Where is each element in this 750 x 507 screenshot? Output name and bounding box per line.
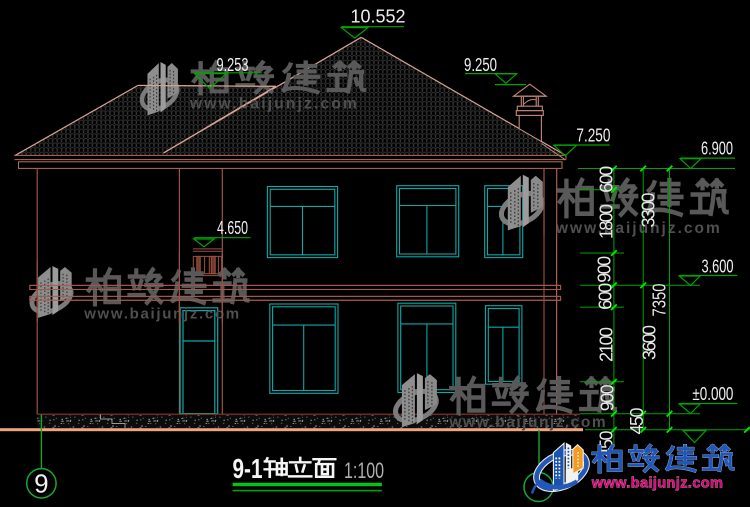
svg-text:www.baijunjz.com: www.baijunjz.com <box>83 306 241 323</box>
svg-text:900: 900 <box>597 384 617 411</box>
svg-text:3600: 3600 <box>639 325 659 360</box>
svg-text:9.250: 9.250 <box>464 55 497 75</box>
svg-text:www.baijunjz.com: www.baijunjz.com <box>189 96 359 113</box>
svg-text:9: 9 <box>34 469 48 499</box>
svg-text:1800: 1800 <box>596 204 616 239</box>
svg-text:600: 600 <box>595 283 615 310</box>
svg-text:±0.000: ±0.000 <box>692 384 733 404</box>
svg-text:www.baijunjz.com: www.baijunjz.com <box>448 414 607 431</box>
svg-text:2100: 2100 <box>596 327 616 362</box>
svg-text:3300: 3300 <box>638 193 658 228</box>
svg-text:7.250: 7.250 <box>576 125 610 145</box>
svg-text:9.253: 9.253 <box>217 55 249 75</box>
svg-text:1:100: 1:100 <box>344 458 384 483</box>
svg-text:4.650: 4.650 <box>217 218 248 238</box>
svg-text:3.600: 3.600 <box>702 257 734 277</box>
svg-text:9-1: 9-1 <box>233 453 263 484</box>
svg-text:450: 450 <box>627 408 647 435</box>
svg-text:600: 600 <box>596 166 616 193</box>
svg-text:www.baijunjz.com: www.baijunjz.com <box>591 476 724 492</box>
svg-text:6.900: 6.900 <box>701 138 733 158</box>
svg-text:900: 900 <box>594 256 614 283</box>
svg-text:7350: 7350 <box>649 284 669 317</box>
svg-text:10.552: 10.552 <box>351 7 406 27</box>
